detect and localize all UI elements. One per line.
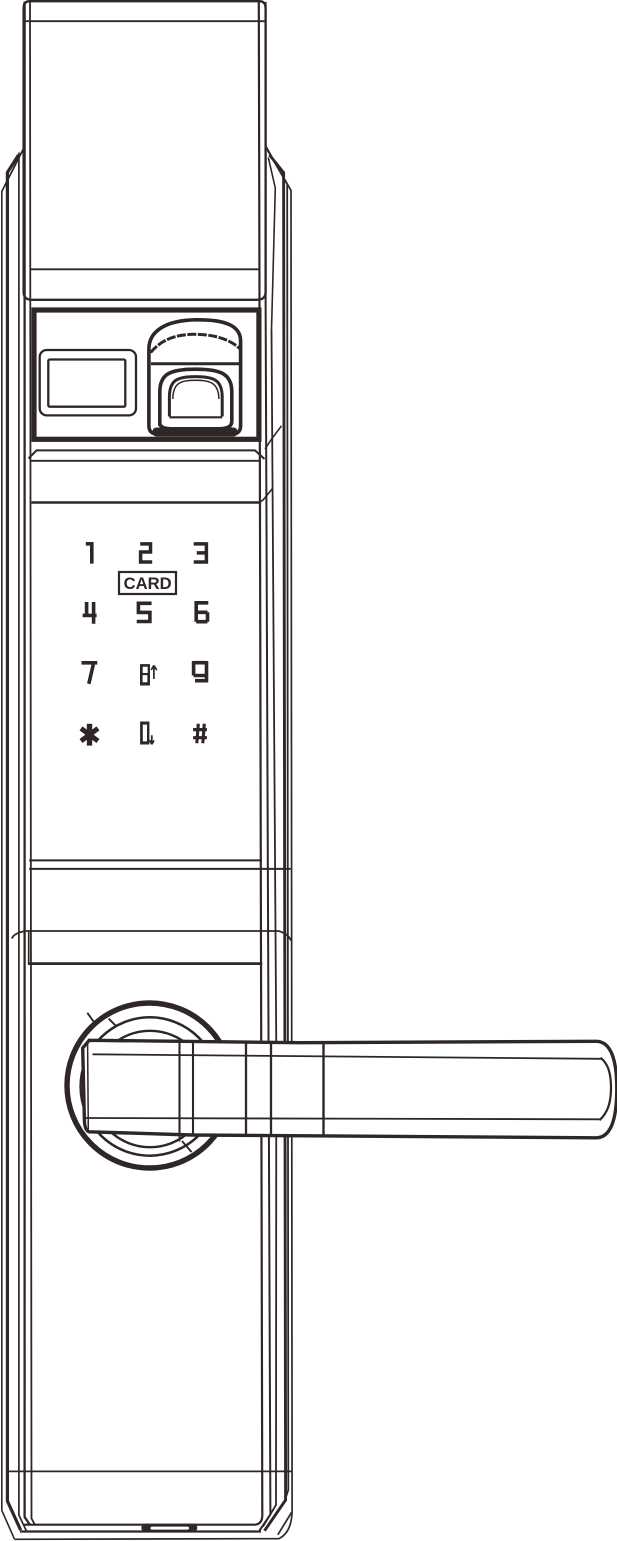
svg-text:CARD: CARD [124, 575, 172, 593]
